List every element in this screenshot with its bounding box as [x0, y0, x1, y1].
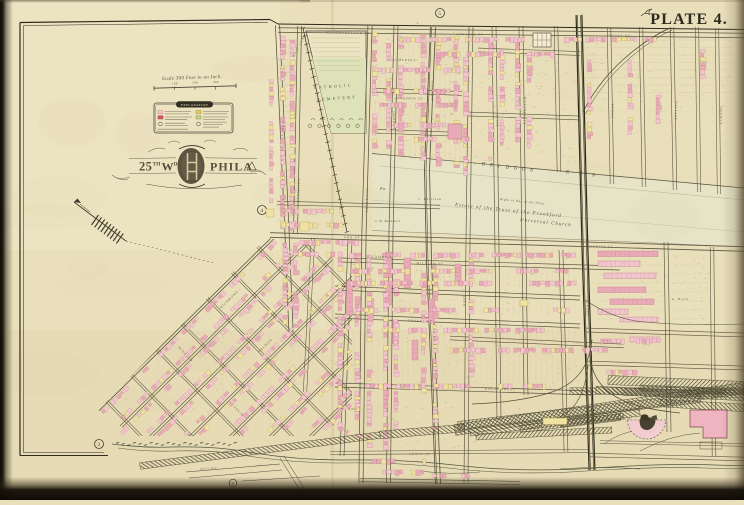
svg-text:BUCKIUS ST: BUCKIUS ST	[587, 244, 614, 248]
svg-text:E SOMERSET: E SOMERSET	[388, 58, 416, 62]
svg-text:A. Boyd: A. Boyd	[672, 297, 689, 301]
svg-text:.: .	[474, 162, 476, 167]
svg-text:TH: TH	[153, 162, 162, 168]
svg-text:TULIP: TULIP	[495, 113, 499, 126]
svg-text:4: 4	[260, 208, 263, 214]
svg-text:200: 200	[193, 81, 199, 85]
svg-text:ANN ST: ANN ST	[344, 235, 361, 239]
svg-text:D: D	[174, 162, 178, 168]
svg-text:B: B	[482, 163, 485, 168]
svg-text:J. Harrison: J. Harrison	[418, 197, 441, 201]
svg-text:GAUL: GAUL	[462, 294, 466, 306]
svg-text:CEDAR: CEDAR	[610, 102, 614, 117]
svg-text:W: W	[162, 160, 174, 174]
svg-text:a: a	[417, 21, 419, 25]
svg-text:E. ANN: E. ANN	[342, 407, 357, 411]
svg-text:WESTMORELAND ST: WESTMORELAND ST	[326, 31, 370, 36]
svg-text:TIOGA ST: TIOGA ST	[609, 34, 630, 38]
svg-text:G: G	[514, 167, 518, 172]
svg-text:LEWIS ST: LEWIS ST	[409, 452, 430, 456]
svg-text:R: R	[489, 164, 493, 169]
svg-text:25: 25	[139, 160, 152, 174]
svg-text:D: D	[505, 166, 510, 171]
svg-text:PHILA: PHILA	[210, 160, 253, 174]
svg-text:O: O	[522, 168, 526, 173]
svg-text:5: 5	[438, 11, 441, 17]
svg-text:100: 100	[172, 81, 178, 85]
svg-text:I: I	[497, 165, 500, 170]
svg-text:SEPVIVA: SEPVIVA	[674, 100, 678, 119]
svg-text:LIVINGSTON: LIVINGSTON	[523, 96, 527, 124]
svg-text:PLATE 4.: PLATE 4.	[650, 11, 728, 28]
svg-text:N: N	[529, 169, 534, 174]
svg-text:300: 300	[213, 80, 219, 84]
